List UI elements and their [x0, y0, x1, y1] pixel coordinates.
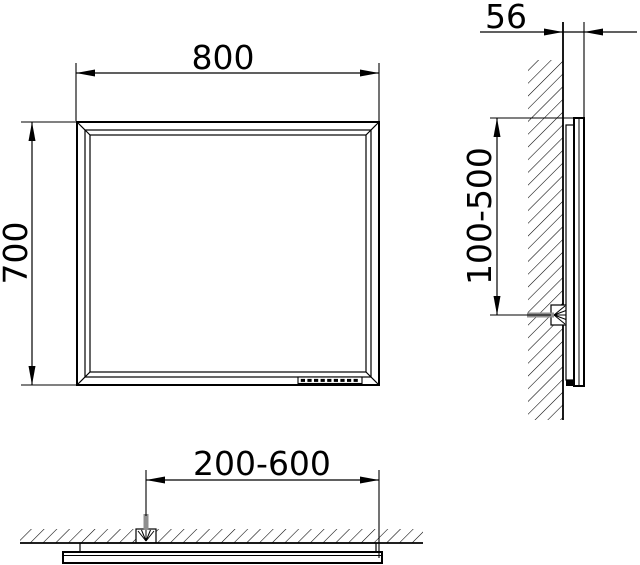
bottom-view: 200-600: [20, 444, 423, 563]
dim-horizontal-range-label: 200-600: [193, 444, 331, 483]
arrowhead-left-icon: [76, 70, 95, 77]
front-view: [77, 122, 379, 385]
wall-hatch-pattern: [528, 60, 563, 420]
technical-drawing-page: 800 700: [0, 0, 640, 565]
mirror-outer-frame: [77, 122, 379, 385]
arrowhead-right-icon: [544, 29, 563, 36]
arrowhead-left-icon: [584, 29, 603, 36]
arrowhead-right-icon: [360, 70, 379, 77]
mirror-section: [566, 118, 584, 386]
dim-height-label: 700: [0, 222, 35, 285]
button-row-icon: [298, 377, 362, 384]
wall-bracket-bottom: [136, 514, 156, 543]
arrowhead-up-icon: [494, 118, 501, 137]
arrowhead-down-icon: [494, 296, 501, 315]
wall-hatch-pattern: [20, 529, 423, 543]
technical-drawing: 800 700: [0, 0, 640, 565]
dim-width-800: 800: [76, 38, 379, 121]
mirror-panel-plan: [63, 552, 382, 563]
dim-vertical-range-label: 100-500: [460, 147, 499, 285]
dim-height-700: 700: [0, 122, 76, 385]
arrowhead-down-icon: [29, 366, 36, 385]
mounting-rail-plan: [80, 543, 376, 552]
dim-width-label: 800: [192, 38, 255, 77]
arrowhead-up-icon: [29, 122, 36, 141]
side-view: 56 100-500: [460, 0, 637, 420]
mounting-rail-section: [566, 125, 574, 380]
arrowhead-right-icon: [360, 477, 379, 484]
arrowhead-left-icon: [146, 477, 165, 484]
dim-depth-label: 56: [485, 0, 527, 36]
rail-end-cap: [566, 380, 573, 386]
